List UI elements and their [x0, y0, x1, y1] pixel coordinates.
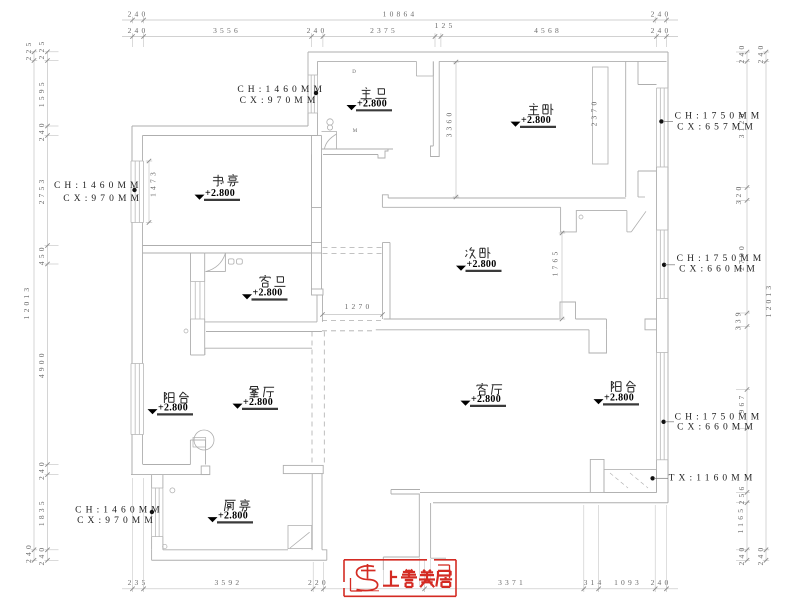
- svg-text:+2.800: +2.800: [471, 394, 501, 405]
- svg-text:1473: 1473: [149, 169, 158, 197]
- svg-text:240: 240: [651, 10, 672, 19]
- svg-text:TX:1160MM: TX:1160MM: [669, 474, 757, 484]
- svg-text:256: 256: [737, 484, 746, 505]
- svg-text:240: 240: [128, 10, 149, 19]
- svg-text:CX:970MM: CX:970MM: [240, 96, 320, 106]
- svg-text:+2.800: +2.800: [604, 393, 634, 404]
- svg-text:240: 240: [651, 26, 672, 35]
- svg-text:240: 240: [37, 120, 46, 141]
- svg-text:1270: 1270: [345, 302, 373, 311]
- svg-text:240: 240: [651, 578, 672, 587]
- svg-text:+2.800: +2.800: [218, 511, 248, 522]
- svg-text:+2.800: +2.800: [243, 397, 273, 408]
- svg-text:1093: 1093: [614, 578, 642, 587]
- svg-text:1765: 1765: [551, 249, 560, 277]
- svg-text:CH:1460MM: CH:1460MM: [54, 181, 143, 191]
- svg-text:320: 320: [734, 184, 743, 205]
- svg-text:225: 225: [24, 40, 33, 61]
- svg-text:2370: 2370: [590, 99, 599, 127]
- svg-text:240: 240: [24, 542, 33, 563]
- svg-text:12013: 12013: [22, 285, 31, 320]
- svg-text:CH:1460MM: CH:1460MM: [237, 85, 326, 95]
- svg-text:2375: 2375: [370, 26, 398, 35]
- svg-text:+2.800: +2.800: [521, 115, 551, 126]
- svg-text:220: 220: [308, 578, 329, 587]
- svg-text:2753: 2753: [37, 177, 46, 205]
- svg-text:240: 240: [37, 545, 46, 566]
- svg-text:240: 240: [307, 26, 328, 35]
- svg-text:+2.800: +2.800: [253, 288, 283, 299]
- svg-text:240: 240: [756, 43, 765, 64]
- svg-text:4900: 4900: [37, 350, 46, 378]
- svg-text:314: 314: [584, 578, 605, 587]
- svg-text:240: 240: [37, 459, 46, 480]
- svg-text:125: 125: [435, 21, 456, 30]
- svg-text:CX:660MM: CX:660MM: [679, 264, 759, 274]
- svg-text:235: 235: [128, 578, 149, 587]
- svg-text:3556: 3556: [213, 26, 241, 35]
- svg-text:450: 450: [37, 244, 46, 265]
- svg-text:CH:1750MM: CH:1750MM: [675, 112, 764, 122]
- svg-text:+2.800: +2.800: [467, 259, 497, 270]
- svg-text:3371: 3371: [498, 578, 526, 587]
- svg-text:+2.800: +2.800: [357, 98, 387, 109]
- svg-text:240: 240: [756, 545, 765, 566]
- svg-text:4568: 4568: [534, 26, 562, 35]
- svg-text:CX:660MM: CX:660MM: [677, 423, 757, 433]
- svg-text:3360: 3360: [445, 110, 454, 138]
- svg-text:CH:1750MM: CH:1750MM: [677, 254, 766, 264]
- svg-text:967: 967: [737, 393, 746, 414]
- svg-text:225: 225: [37, 39, 46, 60]
- svg-text:CX:657MM: CX:657MM: [677, 123, 757, 133]
- svg-text:240: 240: [737, 43, 746, 64]
- svg-text:+2.800: +2.800: [158, 403, 188, 414]
- svg-text:CX:970MM: CX:970MM: [63, 194, 143, 204]
- svg-text:D: D: [352, 70, 356, 75]
- svg-text:CH:1750MM: CH:1750MM: [675, 412, 764, 422]
- svg-text:3592: 3592: [214, 578, 242, 587]
- svg-text:1165: 1165: [736, 506, 745, 534]
- svg-text:M: M: [353, 129, 358, 134]
- svg-text:240: 240: [128, 26, 149, 35]
- svg-text:240: 240: [737, 545, 746, 566]
- svg-text:12013: 12013: [764, 283, 773, 318]
- svg-text:1595: 1595: [37, 79, 46, 107]
- svg-text:+2.800: +2.800: [205, 188, 235, 199]
- svg-text:CX:970MM: CX:970MM: [77, 516, 157, 526]
- svg-text:1835: 1835: [37, 498, 46, 526]
- svg-text:10864: 10864: [383, 10, 418, 19]
- svg-text:339: 339: [734, 309, 743, 330]
